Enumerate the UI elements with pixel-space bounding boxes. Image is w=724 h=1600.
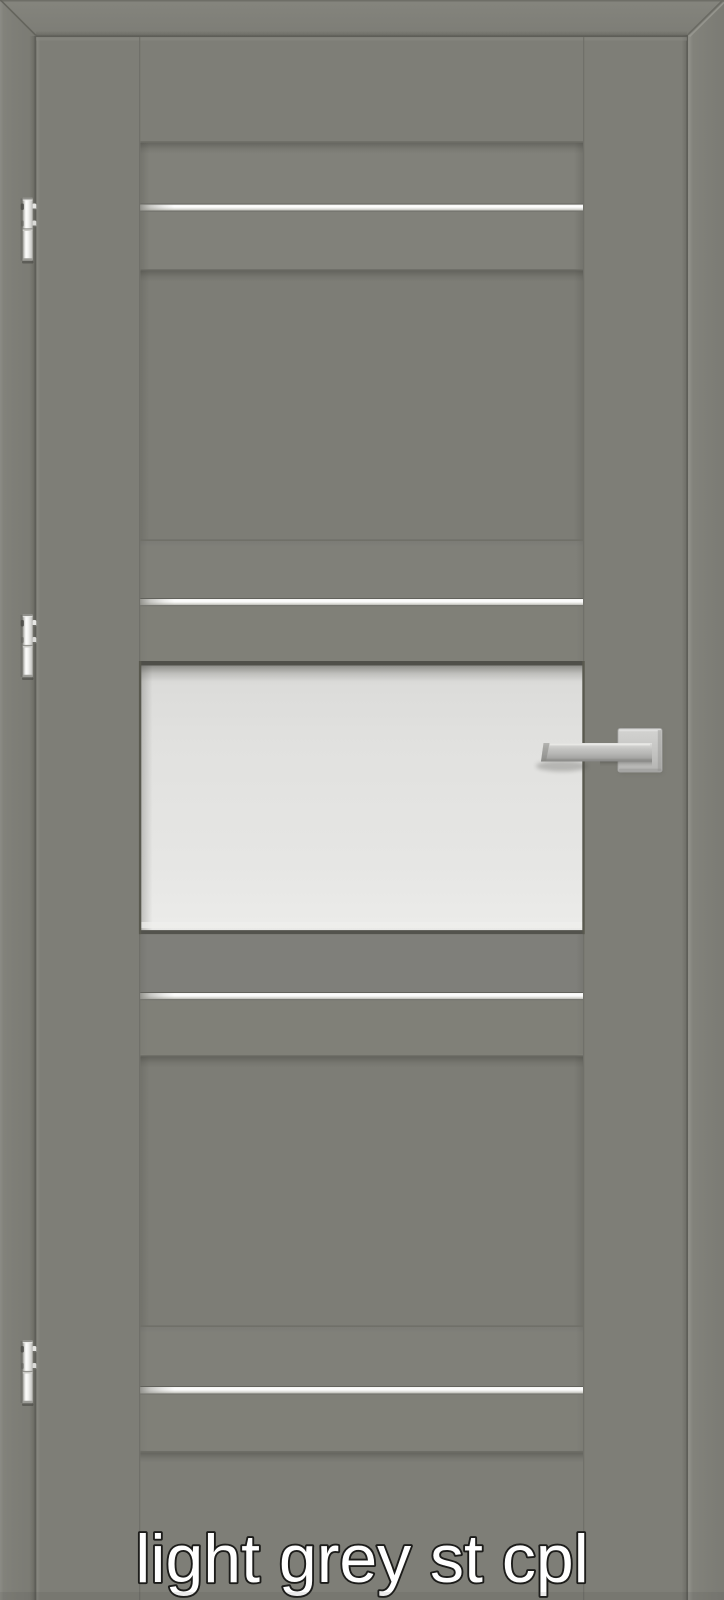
svg-text:light grey st cpl: light grey st cpl — [135, 1521, 589, 1597]
